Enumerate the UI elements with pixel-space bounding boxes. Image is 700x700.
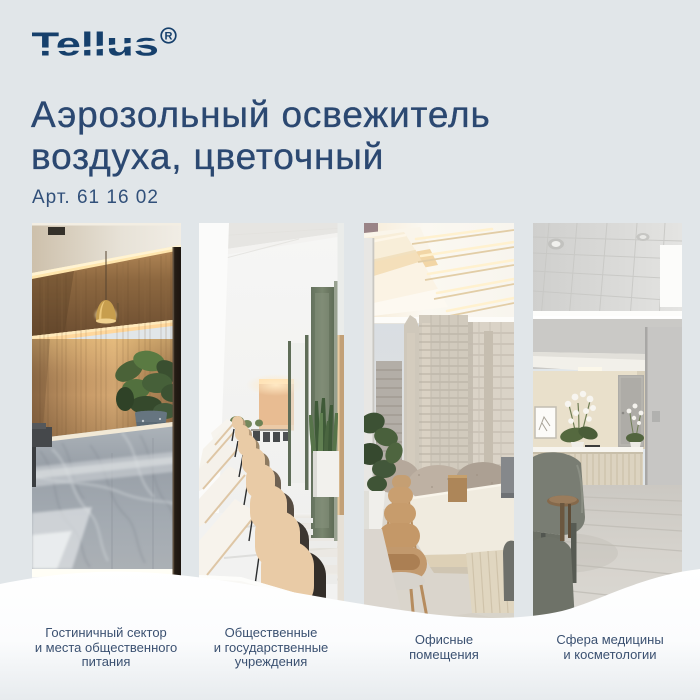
svg-text:R: R — [165, 31, 173, 43]
